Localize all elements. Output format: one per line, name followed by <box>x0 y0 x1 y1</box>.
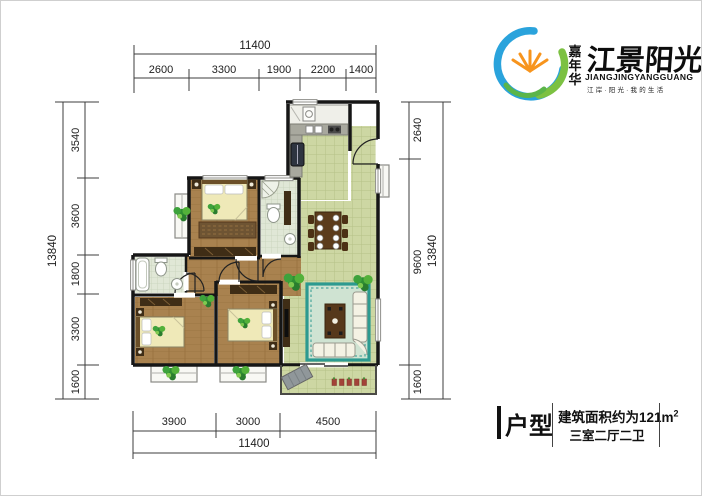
kitchen-sink <box>306 126 313 133</box>
dim-right-seg-1: 9600 <box>412 250 424 274</box>
unit-area: 建筑面积约为121m2 <box>558 406 656 426</box>
dim-bottom-seg-2: 4500 <box>316 416 340 428</box>
utility-floor <box>289 105 349 124</box>
dim-right-seg-0: 2640 <box>412 118 424 142</box>
unit-type-label: 户型 <box>505 406 553 441</box>
dim-right-total: 13840 <box>427 235 439 267</box>
dim-top-seg-2: 1900 <box>267 64 291 76</box>
dim-top-total: 11400 <box>239 40 270 52</box>
dim-bottom-seg-1: 3000 <box>236 416 260 428</box>
dim-top-seg-0: 2600 <box>149 64 173 76</box>
dim-left-seg-0: 3540 <box>70 128 82 152</box>
wardrobe <box>230 285 277 294</box>
unit-area-sup: 2 <box>674 409 679 419</box>
unit-area-text: 建筑面积约为121m <box>558 410 674 425</box>
dim-bottom-seg-0: 3900 <box>162 416 186 428</box>
washer <box>303 107 315 121</box>
cabinet <box>284 191 291 225</box>
logo-tagline: 江岸·阳光·我的生活 <box>587 84 665 94</box>
dim-left-seg-4: 1600 <box>70 370 82 394</box>
logo-mark <box>497 31 564 97</box>
wardrobe <box>140 298 182 306</box>
logo-brand: 嘉年华 <box>567 45 583 87</box>
dim-top-seg-3: 2200 <box>311 64 335 76</box>
dim-left-total: 13840 <box>47 235 59 267</box>
dim-left-seg-2: 1800 <box>70 262 82 286</box>
bathtub <box>136 258 149 291</box>
dim-right-seg-2: 1600 <box>412 370 424 394</box>
unit-rooms: 三室二厅二卫 <box>558 425 656 444</box>
tv <box>285 309 289 337</box>
dim-top-seg-1: 3300 <box>212 64 236 76</box>
divider <box>659 403 660 447</box>
dim-top-seg-4: 1400 <box>349 64 373 76</box>
dim-bottom-total: 11400 <box>238 438 269 450</box>
logo-pinyin: JIANGJINGYANGGUANG <box>585 72 693 82</box>
divider <box>552 403 553 447</box>
dim-left-seg-1: 3600 <box>70 204 82 228</box>
unit-info-bar <box>497 406 501 439</box>
dim-left-seg-3: 3300 <box>70 317 82 341</box>
floorplan-page: 11400 2600 3300 1900 2200 1400 3900 3000… <box>0 0 702 496</box>
